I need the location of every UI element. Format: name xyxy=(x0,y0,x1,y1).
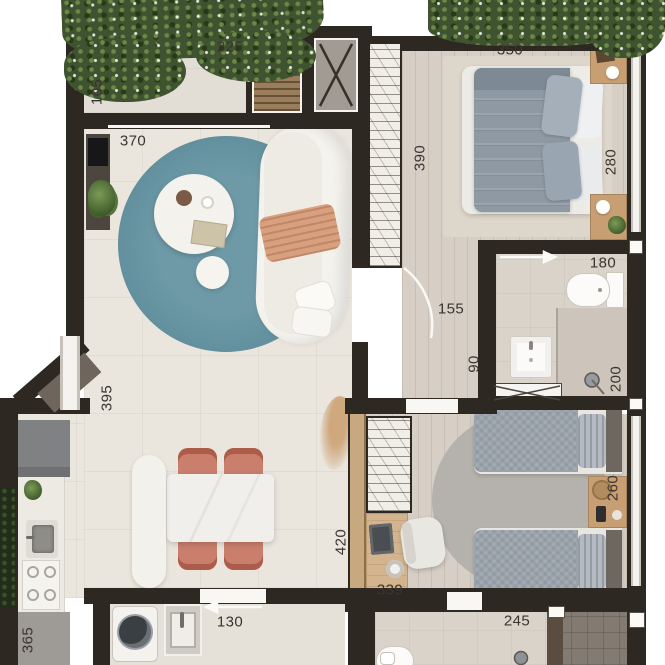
toilet-bowl xyxy=(566,273,610,307)
wall xyxy=(478,240,646,254)
bed2-headboard xyxy=(606,530,622,592)
wall-break xyxy=(629,240,643,254)
kitchen-island xyxy=(132,455,166,588)
sliding-door-opening xyxy=(200,589,266,603)
decor-cup xyxy=(201,196,214,209)
shower2-divider xyxy=(547,612,563,665)
master-pillow-gray xyxy=(540,74,583,138)
nightstand-cup xyxy=(612,510,622,520)
laundry-faucet xyxy=(180,612,184,628)
sink-faucet xyxy=(529,341,533,350)
decor-bowl xyxy=(176,190,192,206)
nightstand-tray xyxy=(592,480,612,500)
elevator-shaft xyxy=(314,38,358,112)
desk-mug xyxy=(386,560,404,578)
nightstand-plant xyxy=(608,216,626,234)
balcony-glass-door xyxy=(108,125,270,128)
sofa-pillow xyxy=(290,305,334,338)
kitchen-sink-basin xyxy=(32,525,54,553)
sink-drain xyxy=(529,358,533,362)
nightstand-phone xyxy=(596,506,606,522)
tv xyxy=(88,138,108,166)
wall xyxy=(93,588,110,665)
stove-burner xyxy=(27,589,39,601)
master-wardrobe xyxy=(368,42,402,268)
door-opening xyxy=(406,399,458,413)
door-opening xyxy=(447,592,482,610)
wall xyxy=(345,588,646,612)
wood-partition xyxy=(348,400,366,592)
balcony-planting xyxy=(64,38,186,102)
toilet2-cistern xyxy=(380,652,395,665)
wall-break xyxy=(629,612,645,628)
exterior-planting xyxy=(590,0,665,58)
side-table xyxy=(196,256,229,289)
kitchen-window-planter xyxy=(0,487,15,608)
kitchen-faucet xyxy=(26,536,34,539)
master-pillow-gray xyxy=(542,141,583,202)
bed2-headboard xyxy=(606,410,622,472)
bed2-duvet xyxy=(474,410,578,472)
toilet-flush-dot xyxy=(598,288,602,292)
nightstand-vase xyxy=(596,200,610,214)
nightstand-vase xyxy=(606,66,619,79)
floor-plan: 2251053703503902801801559020039542026033… xyxy=(0,0,665,665)
bedroom2-wardrobe xyxy=(366,416,412,513)
wall xyxy=(352,342,368,400)
wall xyxy=(478,254,496,410)
kitchen-herb-plant xyxy=(24,480,42,500)
bed2-pillow xyxy=(578,534,606,590)
balcony-planting xyxy=(196,30,316,82)
window xyxy=(60,336,80,410)
decor-book xyxy=(190,220,227,248)
dining-table xyxy=(167,474,274,542)
laptop xyxy=(369,523,395,555)
stove-burner xyxy=(27,566,39,578)
stove-burner xyxy=(44,566,56,578)
window xyxy=(631,56,641,232)
kitchen-lower-counter xyxy=(18,612,70,665)
bed2-duvet xyxy=(474,530,578,594)
second-shower-floor xyxy=(555,612,627,665)
shower-floor xyxy=(556,308,629,396)
washing-machine-door xyxy=(119,616,151,648)
wall xyxy=(478,396,646,410)
wall-break xyxy=(629,398,643,410)
wall-break xyxy=(548,606,565,618)
wall xyxy=(348,600,375,665)
window xyxy=(631,416,641,586)
bed2-pillow xyxy=(578,414,606,468)
fridge xyxy=(18,420,70,477)
console-plant xyxy=(88,180,116,216)
stove-burner xyxy=(44,589,56,601)
